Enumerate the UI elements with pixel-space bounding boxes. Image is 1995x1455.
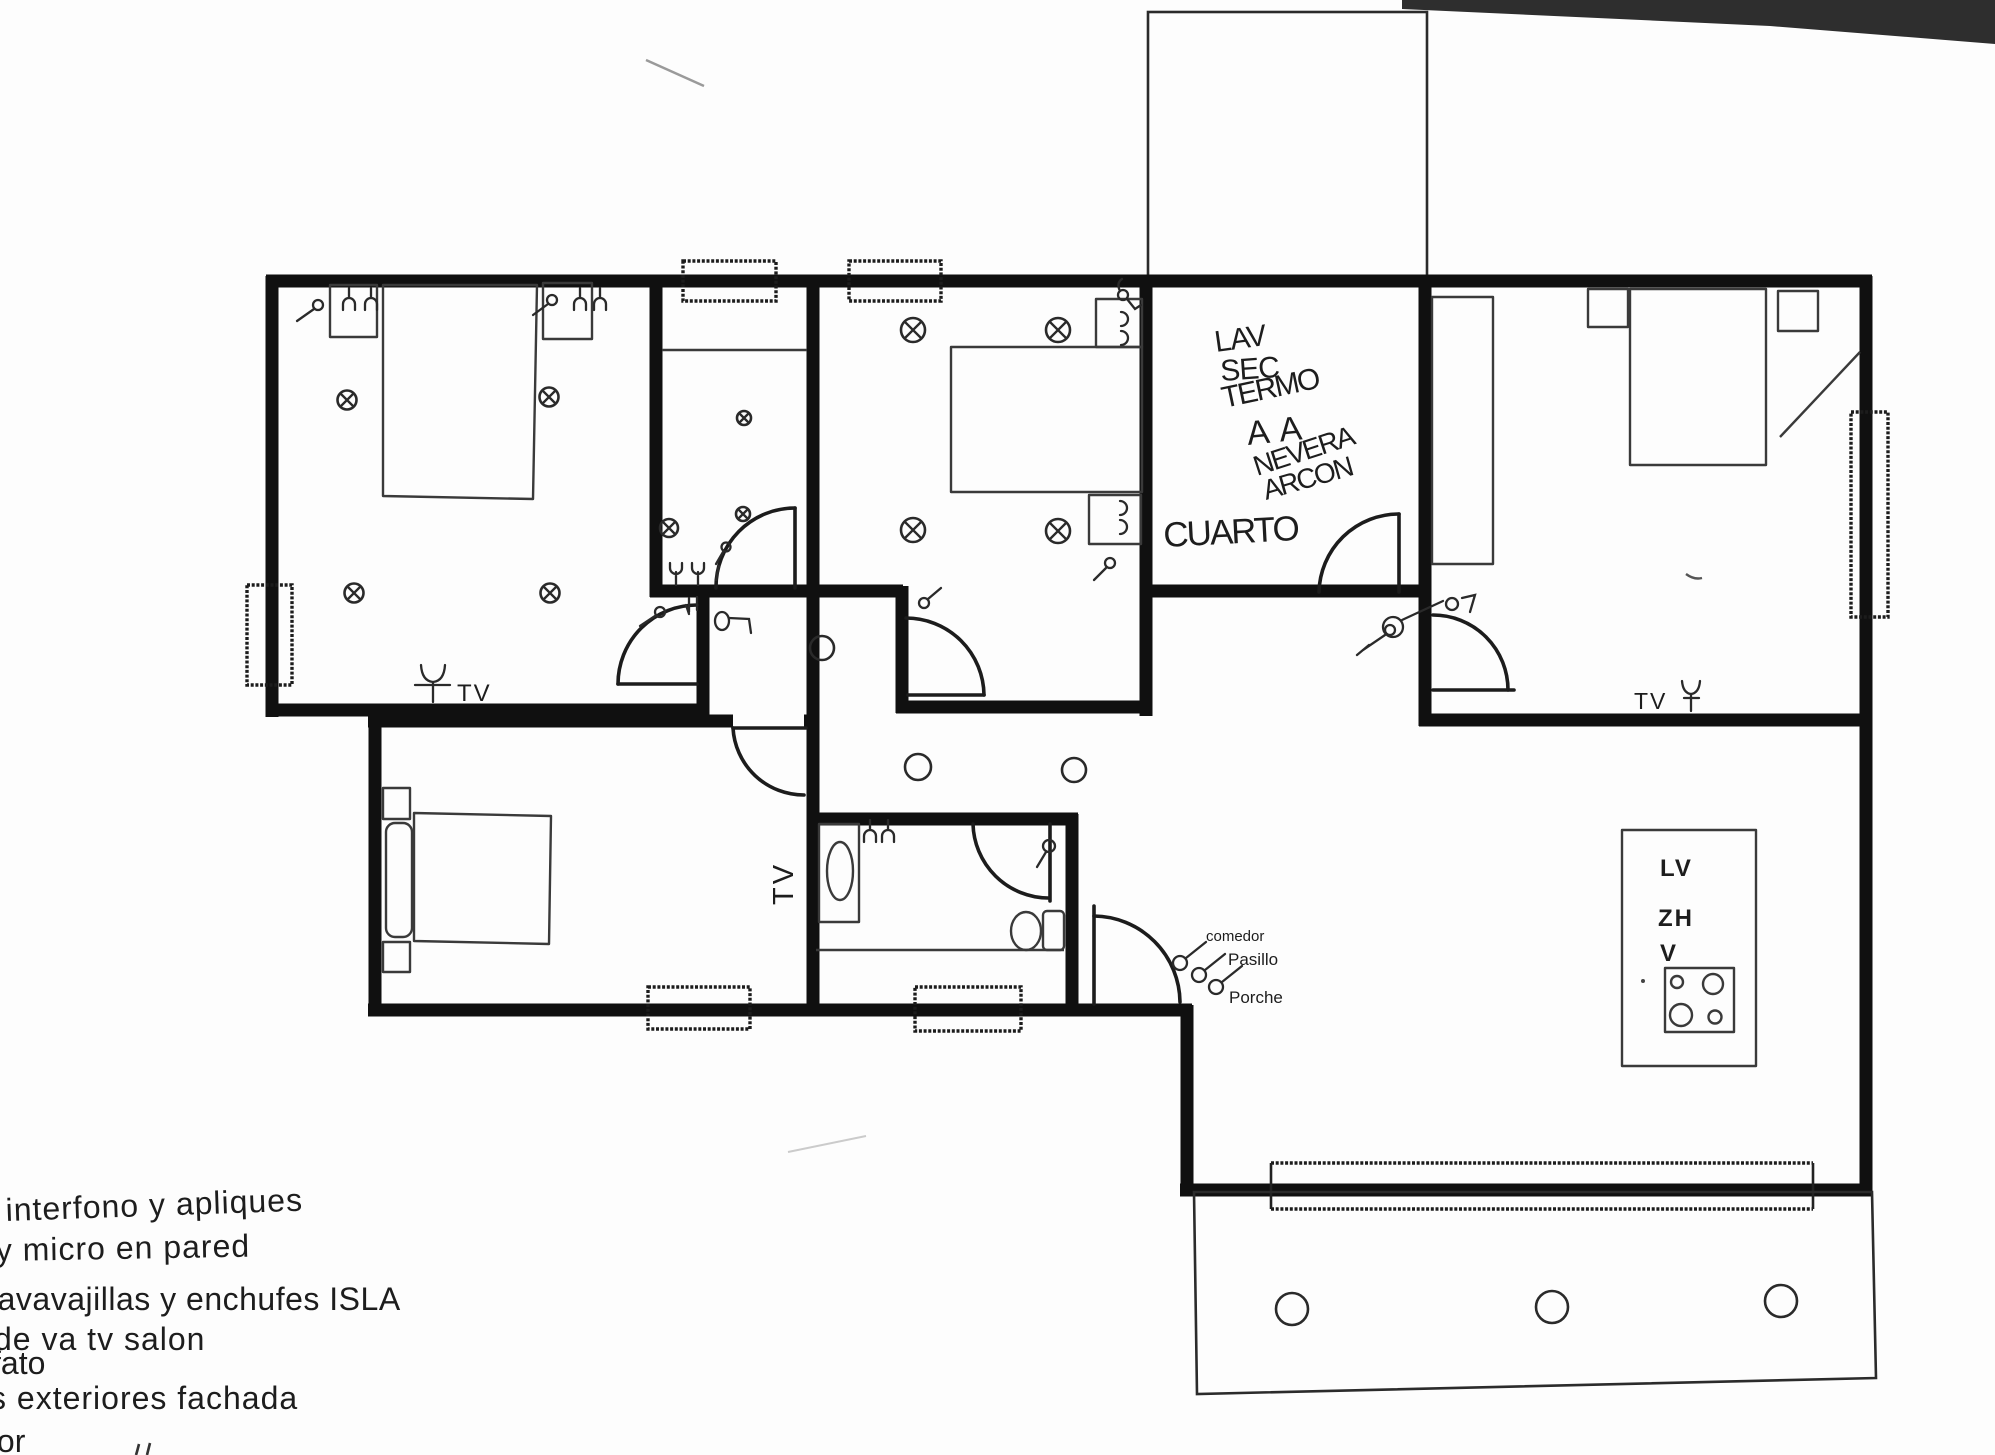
svg-text:LV: LV [1660,855,1693,882]
svg-text:CUARTO: CUARTO [1162,509,1299,555]
svg-text:TV: TV [457,680,492,707]
svg-text:ZH: ZH [1658,905,1694,932]
svg-text:fato: fato [0,1345,45,1381]
svg-text:V: V [1660,940,1676,967]
svg-text:interfono y apliques: interfono y apliques [5,1182,304,1228]
svg-text:TV: TV [1634,688,1667,714]
svg-text:lavavajillas y enchufes ISLA: lavavajillas y enchufes ISLA [0,1281,401,1317]
svg-text:s exteriores fachada: s exteriores fachada [0,1380,298,1416]
svg-text:tor: tor [0,1423,26,1455]
svg-text:comedor: comedor [1206,928,1264,945]
svg-text:TV: TV [768,862,800,905]
svg-text:y micro en pared: y micro en pared [0,1228,250,1268]
svg-text:Porche: Porche [1229,988,1283,1007]
svg-text:Pasillo: Pasillo [1228,950,1278,969]
